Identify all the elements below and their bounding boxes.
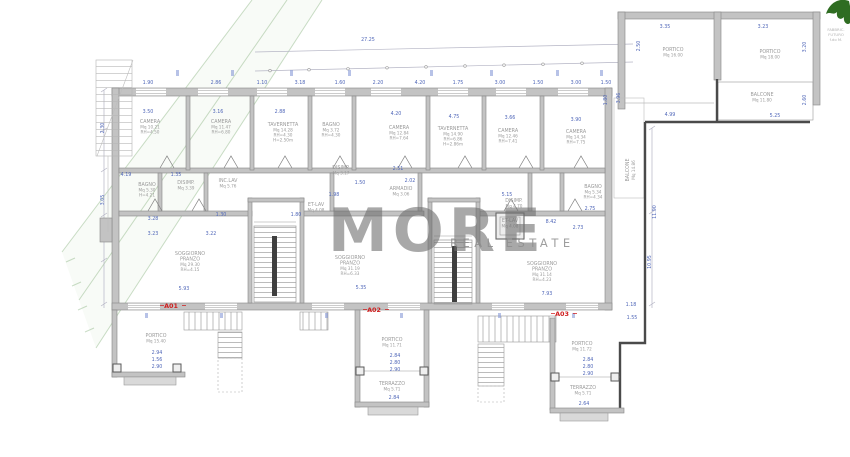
wall-top <box>112 88 612 96</box>
room-label: CAMERAMq 12.46RH=7.41 <box>498 128 519 144</box>
pillar <box>611 373 619 381</box>
overall-dim-line <box>255 44 633 52</box>
room-label: INC.LAVMq 5.76 <box>219 178 239 189</box>
svg-text:2.90: 2.90 <box>390 367 401 373</box>
svg-text:3.90: 3.90 <box>571 117 582 123</box>
svg-text:Mq 11.80: Mq 11.80 <box>752 98 772 103</box>
room-label: CAMERAMq 12.84RH=7.64 <box>389 125 410 141</box>
room-label: BAGNOMq 5.30H=4.21 <box>138 182 156 198</box>
corner-note: FABBRIC. FUTURO f.do M. <box>827 27 844 42</box>
wall-partition <box>540 96 544 170</box>
stairs-below <box>478 386 504 402</box>
wall <box>550 318 555 410</box>
watermark-brand: MORE <box>328 196 546 266</box>
svg-text:1.35: 1.35 <box>171 172 182 178</box>
svg-text:Mq 5.76: Mq 5.76 <box>220 184 237 189</box>
svg-text:Mq 3.39: Mq 3.39 <box>178 186 195 191</box>
room-label: PORTICOMq 16.00 <box>662 47 683 58</box>
room-label: PORTICOMq 11.72 <box>571 341 592 352</box>
wall-partition <box>204 173 208 211</box>
svg-text:2.75: 2.75 <box>585 206 596 212</box>
wall <box>355 402 429 407</box>
step-slab <box>560 413 608 421</box>
room-label: TAVERNETTAMq 14.90RH=6.86H=2.86m <box>437 126 469 147</box>
room-label: CAMERAMq 10.21RH=4.50 <box>140 119 161 135</box>
svg-text:3.35: 3.35 <box>660 24 671 30</box>
svg-text:Mq 18.00: Mq 18.00 <box>760 55 780 60</box>
svg-text:1.18: 1.18 <box>626 302 637 308</box>
svg-text:1.80: 1.80 <box>603 95 609 106</box>
wall <box>112 372 185 377</box>
wall-stairwell <box>248 198 252 303</box>
wall-bottom <box>112 303 612 310</box>
svg-text:3.05: 3.05 <box>100 195 106 206</box>
svg-text:f.do M.: f.do M. <box>830 37 843 42</box>
svg-text:Mq 14.86: Mq 14.86 <box>631 160 636 180</box>
room-label: TAVERNETTAMq 14.28RH=4.30H=2.50m <box>267 122 299 143</box>
svg-text:RH=4.50: RH=4.50 <box>141 130 160 135</box>
room-label: PORTICOMq 18.00 <box>759 49 780 60</box>
svg-text:4.20: 4.20 <box>391 111 402 117</box>
svg-text:1.60: 1.60 <box>335 80 346 86</box>
svg-text:4.20: 4.20 <box>415 80 426 86</box>
unit-tag-a03: A03 <box>555 310 569 318</box>
wall-partition <box>352 96 356 170</box>
svg-text:RH=6.33: RH=6.33 <box>341 271 360 276</box>
watermark: MORE REAL ESTATE <box>328 196 575 266</box>
svg-text:5.35: 5.35 <box>356 285 367 291</box>
step-slab <box>368 407 418 415</box>
svg-text:2.02: 2.02 <box>405 178 416 184</box>
svg-text:2.86: 2.86 <box>211 80 222 86</box>
leaf-icon <box>826 0 850 24</box>
svg-text:Mq 5.71: Mq 5.71 <box>384 387 401 392</box>
svg-text:RH=7.41: RH=7.41 <box>499 139 518 144</box>
wall-stairwell <box>248 198 304 202</box>
svg-text:3.96: 3.96 <box>616 93 622 104</box>
room-label: ET-LAVMq 4.08 <box>308 202 325 213</box>
svg-text:1.50: 1.50 <box>601 80 612 86</box>
pillar <box>113 364 121 372</box>
svg-text:10.95: 10.95 <box>647 255 653 269</box>
svg-text:1.56: 1.56 <box>152 357 163 363</box>
svg-text:3.20: 3.20 <box>802 42 808 53</box>
svg-text:2.80: 2.80 <box>583 364 594 370</box>
svg-text:SOGGIORNO: SOGGIORNO <box>175 251 205 257</box>
svg-text:Mq 3.17: Mq 3.17 <box>333 171 350 176</box>
svg-text:RH=6.80: RH=6.80 <box>212 130 231 135</box>
wall-right <box>605 88 612 310</box>
svg-text:RH=4.34: RH=4.34 <box>584 195 603 200</box>
stairs <box>478 344 504 386</box>
wall-pier <box>100 218 112 242</box>
stairs-below <box>218 358 242 392</box>
wall-interior <box>119 211 252 216</box>
room-label: DISIMP.Mq 3.17 <box>332 165 349 176</box>
svg-text:8.42: 8.42 <box>546 219 557 225</box>
room-label: BALCONEMq 14.86 <box>625 159 636 182</box>
unit-tag-a02: A02 <box>367 306 381 314</box>
room-label: TERRAZZOMq 5.71 <box>569 385 596 396</box>
wall <box>714 12 721 80</box>
svg-text:3.23: 3.23 <box>758 24 769 30</box>
svg-text:11.90: 11.90 <box>652 205 658 219</box>
pillar <box>173 364 181 372</box>
svg-text:5.25: 5.25 <box>770 113 781 119</box>
stairs <box>184 312 242 330</box>
unit-tag-a01: A01 <box>164 302 178 310</box>
step-slab <box>124 377 176 385</box>
entry-stairs <box>184 312 556 402</box>
svg-text:RH=7.64: RH=7.64 <box>390 136 409 141</box>
svg-text:Mq 15.40: Mq 15.40 <box>146 339 166 344</box>
wall <box>550 408 624 413</box>
room-label: PORTICOMq 15.40 <box>145 333 166 344</box>
svg-text:1.75: 1.75 <box>453 80 464 86</box>
wall <box>424 310 429 407</box>
svg-text:1.90: 1.90 <box>143 80 154 86</box>
svg-text:3.66: 3.66 <box>505 115 516 121</box>
wall-partition <box>426 96 430 170</box>
survey-tick-line <box>255 62 633 71</box>
svg-text:3.00: 3.00 <box>495 80 506 86</box>
room-label: BAGNOMq 3.72RH=4.30 <box>322 122 341 138</box>
svg-text:3.22: 3.22 <box>206 231 217 237</box>
svg-text:2.64: 2.64 <box>579 401 590 407</box>
svg-text:3.16: 3.16 <box>213 109 224 115</box>
svg-text:2.84: 2.84 <box>389 395 400 401</box>
svg-text:4.75: 4.75 <box>449 114 460 120</box>
svg-text:Mq 11.72: Mq 11.72 <box>572 347 592 352</box>
svg-text:2.30: 2.30 <box>100 123 106 134</box>
svg-text:RH=7.75: RH=7.75 <box>567 140 586 145</box>
stairwell-1 <box>254 222 296 302</box>
pillar <box>551 373 559 381</box>
svg-text:3.50: 3.50 <box>143 109 154 115</box>
room-label: DISIMP.Mq 3.39 <box>177 180 194 191</box>
svg-text:2.84: 2.84 <box>390 353 401 359</box>
room-label: CAMERAMq 11.47RH=6.80 <box>211 119 232 135</box>
svg-text:2.73: 2.73 <box>573 225 584 231</box>
room-label: TERRAZZOMq 5.71 <box>378 381 405 392</box>
svg-text:1.10: 1.10 <box>257 80 268 86</box>
room-label: BAGNOMq 5.34RH=4.34 <box>584 184 603 200</box>
floorplan-drawing: CAMERAMq 10.21RH=4.50 CAMERAMq 11.47RH=6… <box>0 0 850 457</box>
svg-text:H=2.86m: H=2.86m <box>443 142 463 147</box>
room-label: SOGGIORNOPRANZOMq 29.30RH=4.15 <box>175 251 205 272</box>
svg-text:RH=4.15: RH=4.15 <box>181 267 200 272</box>
room-label: BALCONEMq 11.80 <box>751 92 774 103</box>
svg-text:RH=4.23: RH=4.23 <box>533 277 552 282</box>
wall-interior <box>119 168 605 173</box>
stairs <box>218 332 242 358</box>
room-label: PORTICOMq 11.71 <box>381 337 402 348</box>
stair-rail <box>272 236 277 296</box>
svg-text:Mq 5.71: Mq 5.71 <box>575 391 592 396</box>
pillar <box>356 367 364 375</box>
svg-text:2.94: 2.94 <box>152 350 163 356</box>
wall-partition <box>186 96 190 170</box>
room-label: ARMADIOMq 3.06 <box>390 186 413 197</box>
svg-text:2.90: 2.90 <box>152 364 163 370</box>
svg-text:3.00: 3.00 <box>571 80 582 86</box>
svg-text:2.88: 2.88 <box>275 109 286 115</box>
svg-text:RH=4.30: RH=4.30 <box>322 133 341 138</box>
svg-text:2.60: 2.60 <box>802 95 808 106</box>
svg-text:H=4.21: H=4.21 <box>139 193 155 198</box>
wall-partition <box>482 96 486 170</box>
svg-text:Mq 11.71: Mq 11.71 <box>382 343 402 348</box>
svg-text:2.20: 2.20 <box>373 80 384 86</box>
svg-text:1.55: 1.55 <box>627 315 638 321</box>
watermark-tagline: REAL ESTATE <box>450 236 575 250</box>
svg-text:H=2.50m: H=2.50m <box>273 138 293 143</box>
wall <box>813 12 820 105</box>
wall <box>355 310 360 407</box>
svg-text:1.30: 1.30 <box>216 212 227 218</box>
room-label: CAMERAMq 14.34RH=7.75 <box>566 129 587 145</box>
svg-text:2.80: 2.80 <box>390 360 401 366</box>
wall-partition <box>250 96 254 170</box>
overall-width-dim: 27.25 <box>361 37 375 43</box>
svg-text:2.84: 2.84 <box>583 357 594 363</box>
svg-text:4.99: 4.99 <box>665 112 676 118</box>
svg-text:1.80: 1.80 <box>291 212 302 218</box>
svg-text:5.93: 5.93 <box>179 286 190 292</box>
wall-partition <box>308 96 312 170</box>
svg-text:3.18: 3.18 <box>295 80 306 86</box>
svg-text:2.50: 2.50 <box>636 41 642 52</box>
stairs <box>478 316 556 342</box>
svg-text:7.93: 7.93 <box>542 291 553 297</box>
svg-text:2.51: 2.51 <box>393 166 404 172</box>
svg-text:3.23: 3.23 <box>148 231 159 237</box>
floorplan-canvas: CAMERAMq 10.21RH=4.50 CAMERAMq 11.47RH=6… <box>0 0 850 457</box>
pillar <box>420 367 428 375</box>
svg-text:1.50: 1.50 <box>533 80 544 86</box>
svg-text:Mq 4.08: Mq 4.08 <box>308 208 325 213</box>
stairs <box>300 312 328 330</box>
svg-text:1.50: 1.50 <box>355 180 366 186</box>
side-balcony-rail <box>614 98 644 198</box>
svg-text:2.90: 2.90 <box>583 371 594 377</box>
wall-partition <box>560 173 564 211</box>
site-boundary <box>620 79 810 412</box>
svg-text:3.28: 3.28 <box>148 216 159 222</box>
svg-text:4.19: 4.19 <box>121 172 132 178</box>
svg-text:Mq 16.00: Mq 16.00 <box>663 53 683 58</box>
